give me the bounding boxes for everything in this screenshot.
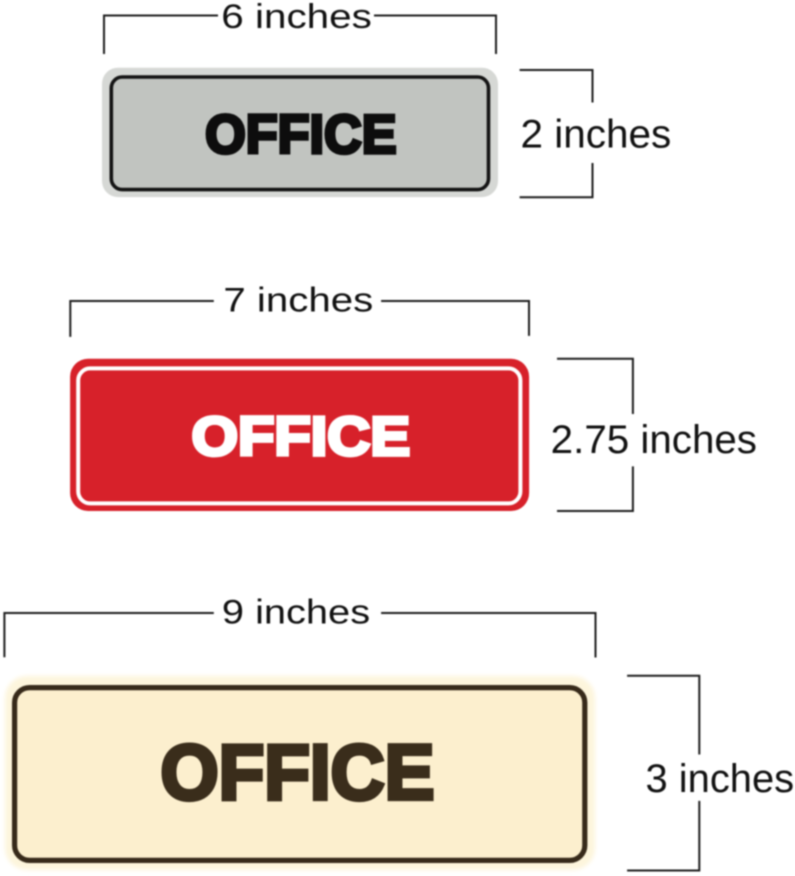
svg-text:OFFICE: OFFICE [192, 405, 410, 467]
svg-text:7 inches: 7 inches [223, 282, 373, 320]
svg-text:OFFICE: OFFICE [161, 728, 435, 816]
svg-text:2.75 inches: 2.75 inches [551, 418, 757, 462]
svg-text:OFFICE: OFFICE [205, 103, 397, 165]
svg-text:9 inches: 9 inches [222, 594, 370, 632]
svg-text:6 inches: 6 inches [221, 0, 371, 36]
svg-text:3 inches: 3 inches [646, 757, 795, 801]
svg-text:2 inches: 2 inches [521, 113, 672, 157]
